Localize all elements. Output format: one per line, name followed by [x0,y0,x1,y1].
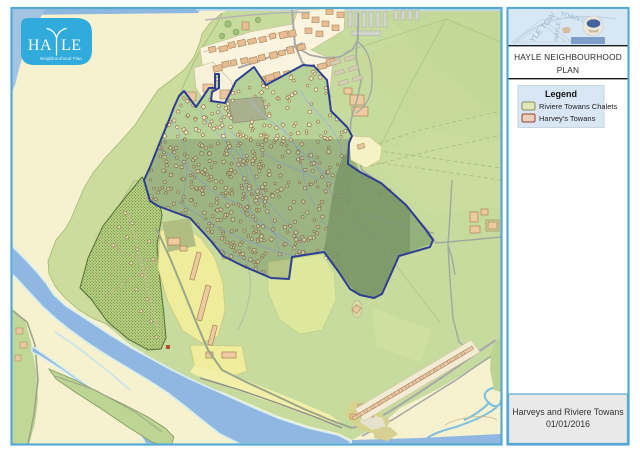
svg-text:Neighbourhood Plan: Neighbourhood Plan [40,56,82,61]
svg-text:PLAN: PLAN [557,65,579,75]
svg-text:Harveys and Riviere Towans: Harveys and Riviere Towans [512,407,624,417]
svg-text:HA: HA [28,37,52,54]
svg-text:LE: LE [61,37,82,54]
svg-text:Harvey's Towans: Harvey's Towans [539,114,596,123]
svg-text:01/01/2016: 01/01/2016 [546,419,590,429]
svg-text:HAYLE NEIGHBOURHOOD: HAYLE NEIGHBOURHOOD [514,52,622,62]
svg-text:Riviere Towans Chalets: Riviere Towans Chalets [539,102,617,111]
svg-text:Legend: Legend [545,89,577,99]
